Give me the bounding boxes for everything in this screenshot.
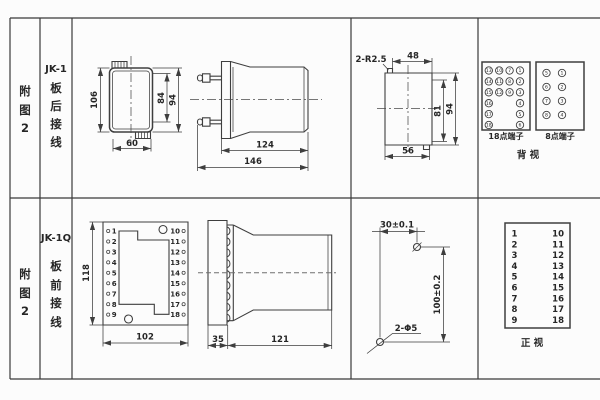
svg-text:14: 14 — [486, 79, 492, 85]
svg-text:3: 3 — [519, 90, 522, 96]
svg-text:16: 16 — [552, 294, 564, 304]
screw-nut — [203, 118, 211, 126]
jk1-panel-cutout: 2-R2.5 48 56 81 94 — [355, 52, 459, 161]
table-left-column: 1 2 3 4 5 6 7 8 9 — [512, 230, 518, 326]
sidebar-row2: 附 图 2 JK-1Q 板 前 接 线 — [19, 233, 71, 329]
svg-text:5: 5 — [512, 273, 518, 283]
dim-118-label: 118 — [82, 264, 92, 282]
jk1q-side-view: 35 121 — [198, 221, 336, 350]
terminal-block-bottom — [136, 132, 151, 139]
svg-text:6: 6 — [545, 85, 548, 91]
svg-text:1: 1 — [112, 228, 117, 236]
svg-text:15: 15 — [170, 280, 180, 288]
svg-text:2: 2 — [561, 85, 564, 91]
svg-text:5: 5 — [545, 71, 548, 77]
svg-text:9: 9 — [508, 90, 511, 96]
keyed-cutout-profile — [119, 231, 169, 314]
svg-text:3: 3 — [561, 99, 564, 105]
wiring-char: 接 — [50, 296, 62, 310]
flange-plate — [222, 62, 231, 139]
screw-cap — [198, 75, 203, 81]
wiring-char: 板 — [50, 259, 62, 273]
svg-text:10: 10 — [552, 230, 564, 240]
terminal-points — [485, 67, 524, 129]
terminal-numbers: 131071 141182 151293 164 175 186 — [486, 68, 522, 129]
rear-terminal-8: 51 62 73 84 8点端子 背 视 — [517, 62, 584, 161]
mounting-screw-bottom — [198, 118, 222, 126]
model-label-jk1q: JK-1Q — [40, 233, 71, 244]
svg-text:7: 7 — [512, 294, 518, 304]
fig-label-char: 附 — [19, 267, 31, 281]
svg-text:15: 15 — [552, 284, 564, 294]
mounting-hole-bottom — [125, 315, 133, 323]
front-terminal-table: 1 2 3 4 5 6 7 8 9 10 11 12 13 14 15 16 1… — [505, 223, 570, 349]
svg-text:4: 4 — [519, 101, 522, 107]
svg-text:11: 11 — [496, 79, 502, 85]
dim-102-label: 102 — [136, 333, 154, 343]
dim-30-label: 30±0.1 — [380, 221, 414, 231]
fig-label-char: 2 — [21, 304, 29, 318]
svg-text:18: 18 — [486, 123, 492, 129]
wiring-char: 线 — [50, 135, 62, 149]
svg-text:8: 8 — [112, 301, 117, 309]
svg-text:12: 12 — [496, 90, 502, 96]
dim-56-label: 56 — [402, 147, 414, 157]
screw-shaft — [210, 76, 222, 80]
jk1q-front-view: 1 2 3 4 5 6 7 8 9 10 11 12 13 14 15 16 1… — [82, 222, 188, 347]
svg-text:1: 1 — [561, 71, 564, 77]
svg-text:1: 1 — [512, 230, 518, 240]
svg-text:9: 9 — [112, 311, 117, 319]
screw-shaft — [210, 120, 222, 124]
terminal18-label: 18点端子 — [488, 131, 523, 141]
svg-text:4: 4 — [112, 259, 117, 267]
svg-text:2: 2 — [112, 238, 117, 246]
svg-text:4: 4 — [512, 262, 518, 272]
dim-81-label: 81 — [434, 105, 444, 117]
model-label-jk1: JK-1 — [44, 64, 67, 75]
svg-text:7: 7 — [508, 68, 511, 74]
svg-text:7: 7 — [545, 99, 548, 105]
svg-text:7: 7 — [112, 290, 117, 298]
fig-label-char: 2 — [21, 121, 29, 135]
mounting-hole-top — [159, 226, 167, 234]
fig-label-char: 附 — [19, 84, 31, 98]
dim-121-label: 121 — [271, 335, 289, 345]
svg-text:18: 18 — [552, 316, 564, 326]
dim-106-label: 106 — [90, 91, 100, 109]
svg-text:10: 10 — [170, 228, 180, 236]
svg-text:6: 6 — [112, 280, 117, 288]
cutout-outline — [385, 73, 432, 145]
hatch-lines — [115, 62, 124, 69]
svg-text:5: 5 — [519, 112, 522, 118]
relay-body — [231, 62, 309, 139]
svg-text:3: 3 — [112, 249, 117, 257]
wiring-char: 板 — [50, 81, 62, 95]
svg-text:17: 17 — [486, 112, 492, 118]
terminal-block-top — [112, 62, 127, 69]
hole-note-label: 2-Φ5 — [395, 324, 418, 334]
dim-48-label: 48 — [407, 52, 419, 62]
svg-text:6: 6 — [512, 284, 518, 294]
svg-text:11: 11 — [552, 240, 564, 250]
dim-35-label: 35 — [212, 335, 224, 345]
svg-text:13: 13 — [552, 262, 564, 272]
table-right-column: 10 11 12 13 14 15 16 17 18 — [552, 230, 564, 326]
svg-text:18: 18 — [170, 311, 180, 319]
wiring-char: 线 — [50, 315, 62, 329]
svg-text:13: 13 — [170, 259, 180, 267]
svg-text:17: 17 — [170, 301, 180, 309]
svg-text:12: 12 — [552, 251, 564, 261]
dim-94-label: 94 — [169, 94, 179, 106]
svg-text:5: 5 — [112, 269, 117, 277]
dim-124-label: 124 — [256, 141, 274, 151]
dim-84-label: 84 — [157, 92, 167, 104]
svg-text:9: 9 — [512, 316, 518, 326]
svg-text:6: 6 — [519, 123, 522, 129]
svg-text:10: 10 — [496, 68, 502, 74]
right-terminal-column: 10 11 12 13 14 15 16 17 18 — [170, 228, 185, 320]
sidebar-row1: 附 图 2 JK-1 板 后 接 线 — [19, 64, 67, 149]
drawing-canvas: 附 图 2 JK-1 板 后 接 线 106 84 94 60 — [0, 0, 600, 400]
dim-146-label: 146 — [244, 157, 262, 167]
drill-hole-bottom — [377, 339, 384, 346]
svg-text:8: 8 — [508, 79, 511, 85]
svg-text:15: 15 — [486, 90, 492, 96]
technical-drawing-page: 附 图 2 JK-1 板 后 接 线 106 84 94 60 — [0, 0, 600, 400]
screw-cap — [198, 119, 203, 125]
svg-text:14: 14 — [170, 269, 180, 277]
dim-60-label: 60 — [126, 139, 138, 149]
svg-text:2: 2 — [512, 240, 518, 250]
svg-text:12: 12 — [170, 249, 180, 257]
wiring-char: 前 — [50, 278, 62, 292]
front-view-label: 正 视 — [521, 337, 544, 349]
svg-text:1: 1 — [519, 68, 522, 74]
radius-note-label: 2-R2.5 — [355, 55, 386, 65]
screw-nut — [203, 74, 211, 82]
fig-label-char: 图 — [19, 286, 31, 300]
drill-plan: 30±0.1 100±0.2 2-Φ5 — [367, 221, 450, 354]
mounting-screw-top — [198, 74, 222, 82]
svg-text:16: 16 — [486, 101, 492, 107]
jk1-front-view: 106 84 94 60 — [90, 56, 182, 152]
hatch-lines — [139, 132, 148, 139]
fig-label-char: 图 — [19, 103, 31, 117]
svg-text:3: 3 — [512, 251, 518, 261]
svg-text:11: 11 — [170, 238, 180, 246]
svg-text:16: 16 — [170, 290, 180, 298]
wiring-char: 后 — [50, 99, 62, 113]
wiring-char: 接 — [50, 117, 62, 131]
svg-text:8: 8 — [512, 305, 518, 315]
svg-text:2: 2 — [519, 79, 522, 85]
hole-note-leader — [367, 334, 421, 354]
svg-text:14: 14 — [552, 273, 564, 283]
svg-text:4: 4 — [561, 113, 564, 119]
terminal8-label: 8点端子 — [545, 131, 575, 141]
dim-94-cutout-label: 94 — [446, 103, 456, 115]
left-terminal-column: 1 2 3 4 5 6 7 8 9 — [107, 228, 117, 320]
dim-100-label: 100±0.2 — [433, 274, 443, 314]
cutout-tab-bottom — [424, 145, 430, 150]
terminal-points — [543, 69, 566, 118]
rear-terminal-18: 131071 141182 151293 164 175 186 18点端子 — [482, 62, 530, 141]
jk1-side-view: 124 146 — [190, 62, 322, 172]
rear-view-label: 背 视 — [517, 149, 540, 161]
svg-text:13: 13 — [486, 68, 492, 74]
svg-text:8: 8 — [545, 113, 548, 119]
svg-text:17: 17 — [552, 305, 564, 315]
